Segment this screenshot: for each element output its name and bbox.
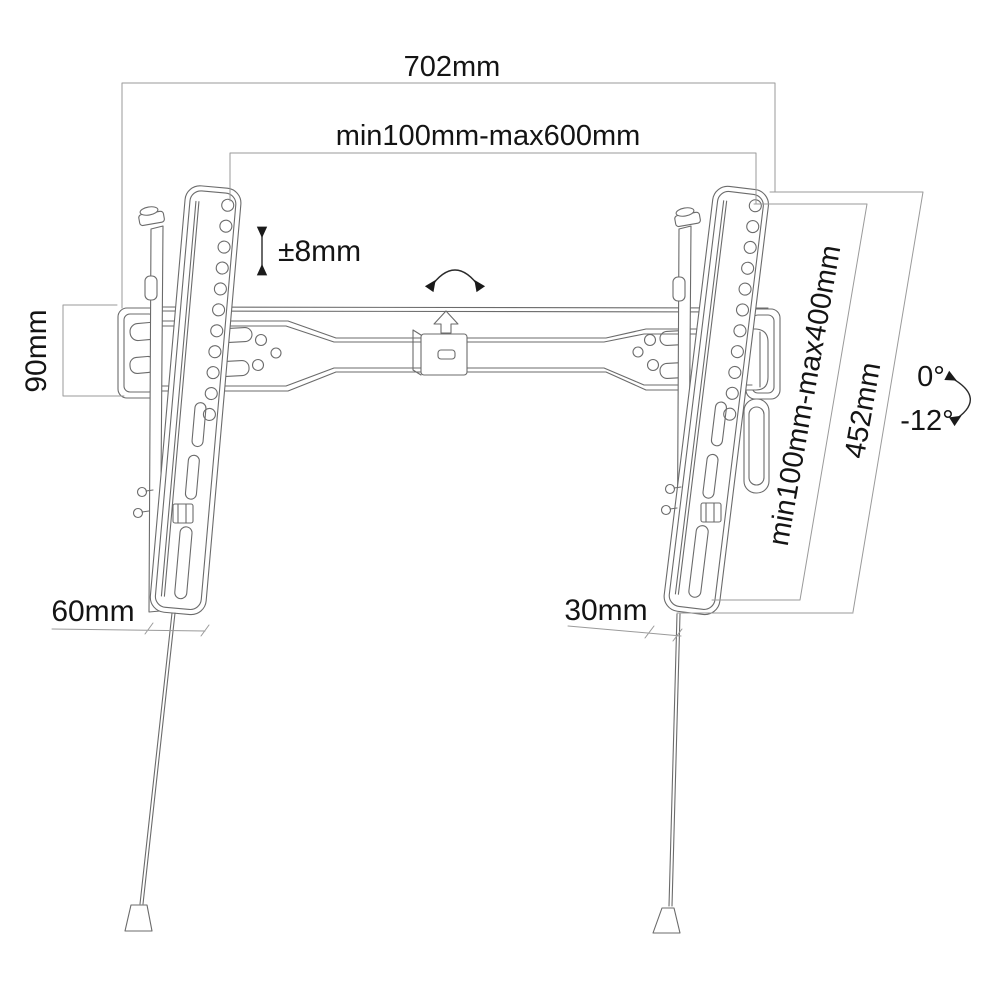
- mount-dimension-diagram: 702mm min100mm-max600mm ±8mm 90mm min100…: [0, 0, 1004, 1004]
- bar-back-edge: [160, 307, 768, 312]
- label-overall-width: 702mm: [404, 51, 501, 83]
- cord-pull-right: [653, 908, 680, 933]
- dim-bottom-offset-right: [568, 626, 682, 641]
- cord-pull-left: [125, 905, 152, 931]
- label-tilt-lower: -12°: [900, 405, 954, 437]
- label-height-adjustment: ±8mm: [278, 235, 361, 268]
- up-arrow-icon: [434, 311, 458, 333]
- label-bracket-height: 452mm: [839, 360, 887, 461]
- bracket-diagram-svg: 702mm min100mm-max600mm ±8mm 90mm min100…: [0, 0, 1004, 1004]
- right-safety-cord: [653, 614, 680, 933]
- center-slide-block: [413, 330, 467, 375]
- label-mount-width-range: min100mm-max600mm: [336, 120, 641, 152]
- label-tilt-upper: 0°: [917, 361, 945, 393]
- left-safety-cord: [125, 613, 175, 931]
- mount-drawing: [118, 185, 780, 933]
- dim-mount-width-range: [230, 153, 756, 204]
- right-rail-handle: [744, 399, 769, 493]
- dim-wall-plate-height: [63, 305, 124, 396]
- rotation-arc-icon: [430, 270, 480, 288]
- label-bottom-offset-right: 30mm: [564, 594, 647, 627]
- label-bottom-offset-left: 60mm: [51, 595, 134, 628]
- label-wall-plate-height: 90mm: [20, 309, 53, 392]
